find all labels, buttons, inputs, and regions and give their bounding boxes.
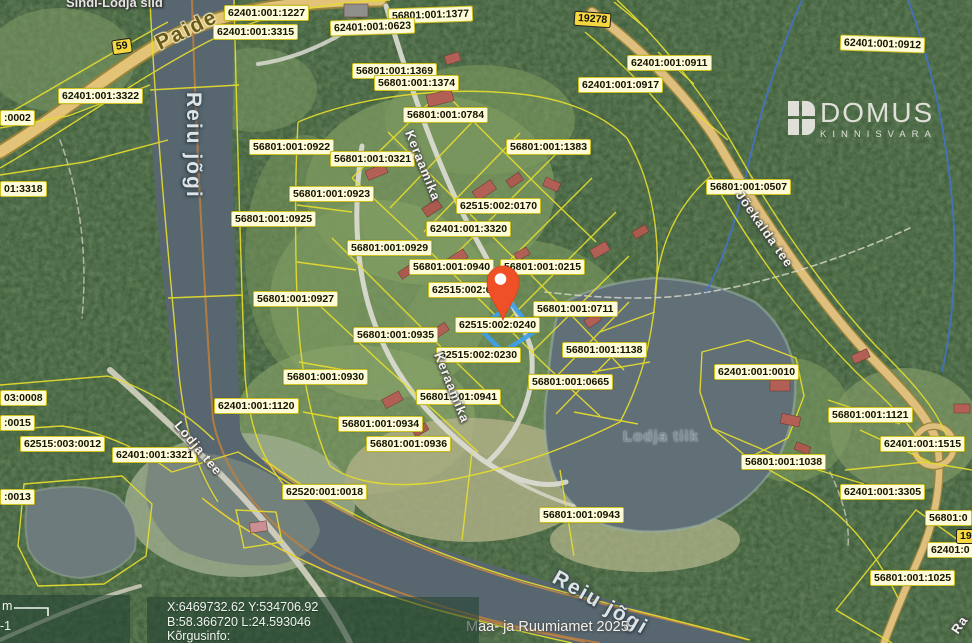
scale-bar-panel: m -1 bbox=[0, 595, 130, 643]
parcel-label: 56801:001:0925 bbox=[231, 211, 316, 227]
road-number-badge: 19 bbox=[956, 529, 972, 544]
parcel-label: 62401:001:0917 bbox=[578, 77, 663, 93]
parcel-label: 56801:001:0929 bbox=[347, 240, 432, 256]
place-label: Reiu jõgi bbox=[181, 92, 205, 199]
coordinates-panel: X:6469732.62 Y:534706.92 B:58.366720 L:2… bbox=[147, 597, 479, 643]
parcel-label: 62401:001:3315 bbox=[213, 24, 298, 40]
parcel-label: 62515:002:0170 bbox=[456, 198, 541, 214]
scale-bar-tick bbox=[8, 605, 58, 619]
parcel-label: 56801:001:0934 bbox=[338, 416, 423, 432]
parcel-label: 56801:001:0935 bbox=[353, 327, 438, 343]
place-label: Sindi-Lodja sild bbox=[66, 0, 163, 10]
place-label: Lodja tiik bbox=[623, 428, 699, 445]
parcel-label: :0015 bbox=[0, 415, 35, 431]
domus-logo: DOMUS KINNISVARA bbox=[788, 99, 937, 140]
parcel-label: 62515:003:0012 bbox=[20, 436, 105, 452]
parcel-label: 56801:001:1383 bbox=[506, 139, 591, 155]
parcel-label: 62401:001:1227 bbox=[224, 5, 309, 21]
parcel-label: 56801:001:0923 bbox=[289, 186, 374, 202]
parcel-label: 01:3318 bbox=[0, 181, 47, 197]
parcel-label: 62401:001:0911 bbox=[627, 55, 712, 71]
parcel-label: 56801:001:1121 bbox=[828, 407, 913, 423]
parcel-label: :0002 bbox=[0, 110, 35, 126]
parcel-label: 56801:001:0922 bbox=[249, 139, 334, 155]
road-number-badge: 19278 bbox=[574, 11, 612, 29]
map-screen: 62401:001:122756801:001:137762401:001:33… bbox=[0, 0, 972, 643]
parcel-label: 56801:001:0321 bbox=[330, 151, 415, 167]
logo-title: DOMUS bbox=[820, 99, 937, 127]
parcel-label: 56801:001:1025 bbox=[870, 570, 955, 586]
parcel-label: 56801:001:0784 bbox=[403, 107, 488, 123]
parcel-label: 56801:0 bbox=[925, 510, 972, 526]
bl-coordinates: B:58.366720 L:24.593046 bbox=[167, 615, 479, 630]
parcel-label: 62401:001:1120 bbox=[214, 398, 299, 414]
elevation-info-label: Kõrgusinfo: bbox=[167, 629, 479, 643]
parcel-label: 62520:001:0018 bbox=[282, 484, 367, 500]
parcel-label: 03:0008 bbox=[0, 390, 47, 406]
map-attribution: Maa- ja Ruumiamet 2025 bbox=[466, 619, 629, 635]
parcel-label: 62401:001:3320 bbox=[426, 221, 511, 237]
parcel-label: 56801:001:1374 bbox=[374, 75, 459, 91]
parcel-label: 62401:001:0912 bbox=[840, 35, 926, 54]
scale-value-label: -1 bbox=[0, 619, 11, 633]
parcel-label: 62401:001:3322 bbox=[58, 88, 143, 104]
parcel-label: 56801:001:1038 bbox=[741, 454, 826, 470]
road-number-badge: 59 bbox=[111, 38, 133, 56]
small-pond-west bbox=[25, 487, 135, 578]
parcel-label: 56801:001:0665 bbox=[528, 374, 613, 390]
parcel-label: 56801:001:0927 bbox=[253, 291, 338, 307]
parcel-label: 62401:001:3321 bbox=[112, 447, 197, 463]
parcel-label: 56801:001:1138 bbox=[562, 342, 647, 358]
xy-coordinates: X:6469732.62 Y:534706.92 bbox=[167, 600, 479, 615]
parcel-label: :0013 bbox=[0, 489, 35, 505]
parcel-label: 56801:001:0711 bbox=[533, 301, 618, 317]
parcel-label: 62401:001:1515 bbox=[880, 436, 965, 452]
logo-subtitle: KINNISVARA bbox=[820, 129, 937, 140]
parcel-label: 56801:001:0930 bbox=[283, 369, 368, 385]
parcel-label: 56801:001:0943 bbox=[539, 507, 624, 523]
location-marker-pin[interactable] bbox=[478, 264, 528, 324]
window-panes-icon bbox=[788, 101, 815, 135]
parcel-label: 62401:001:0623 bbox=[330, 18, 416, 37]
parcel-label: 62401:001:3305 bbox=[840, 484, 925, 500]
parcel-label: 62401:0 bbox=[927, 542, 972, 558]
parcel-label: 56801:001:0936 bbox=[366, 436, 451, 452]
parcel-label: 62401:001:0010 bbox=[714, 364, 799, 380]
